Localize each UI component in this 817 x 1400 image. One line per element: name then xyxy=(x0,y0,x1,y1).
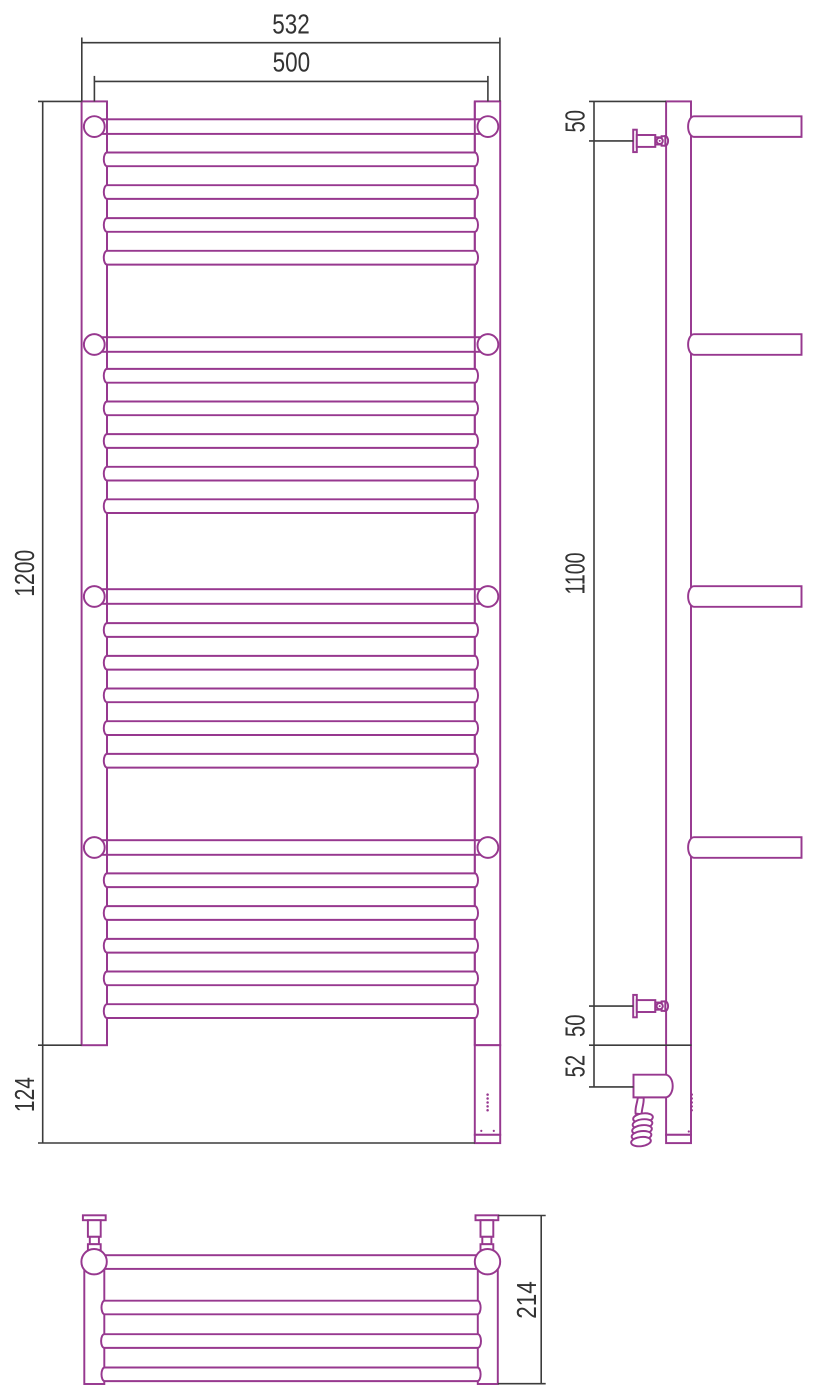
svg-text:124: 124 xyxy=(9,1077,40,1112)
svg-text:1200: 1200 xyxy=(9,550,40,597)
svg-text:214: 214 xyxy=(511,1281,542,1319)
svg-text:50: 50 xyxy=(560,1014,591,1037)
svg-text:500: 500 xyxy=(273,47,311,78)
svg-text:1100: 1100 xyxy=(560,553,591,595)
svg-text:50: 50 xyxy=(560,110,591,133)
svg-text:52: 52 xyxy=(560,1055,591,1078)
svg-text:532: 532 xyxy=(272,8,310,39)
